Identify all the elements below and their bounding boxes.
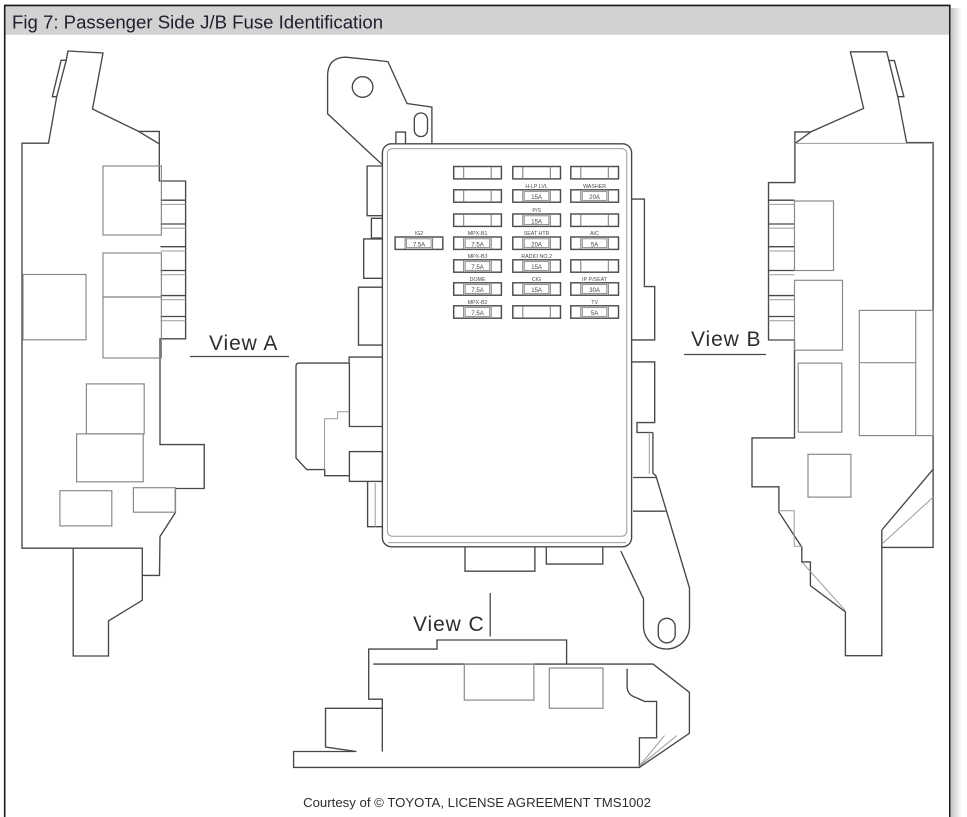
svg-text:Courtesy of © TOYOTA, LICENSE: Courtesy of © TOYOTA, LICENSE AGREEMENT … (303, 795, 651, 810)
svg-text:7.5A: 7.5A (471, 265, 483, 271)
svg-text:7.5A: 7.5A (471, 242, 483, 248)
svg-text:View B: View B (691, 328, 761, 351)
svg-text:15A: 15A (531, 195, 542, 201)
svg-text:5A: 5A (591, 311, 598, 317)
svg-text:7.5A: 7.5A (471, 311, 483, 317)
svg-text:View A: View A (209, 332, 278, 355)
svg-text:15A: 15A (531, 265, 542, 271)
svg-text:20A: 20A (589, 195, 600, 201)
svg-text:Fig 7: Passenger Side J/B Fuse: Fig 7: Passenger Side J/B Fuse Identific… (12, 12, 383, 33)
svg-text:15A: 15A (531, 288, 542, 294)
svg-text:20A: 20A (531, 242, 542, 248)
svg-text:View C: View C (413, 613, 485, 636)
svg-text:7.5A: 7.5A (471, 288, 483, 294)
svg-text:30A: 30A (589, 288, 600, 294)
svg-text:15A: 15A (531, 219, 542, 225)
svg-text:7.5A: 7.5A (413, 242, 425, 248)
svg-text:5A: 5A (591, 242, 598, 248)
